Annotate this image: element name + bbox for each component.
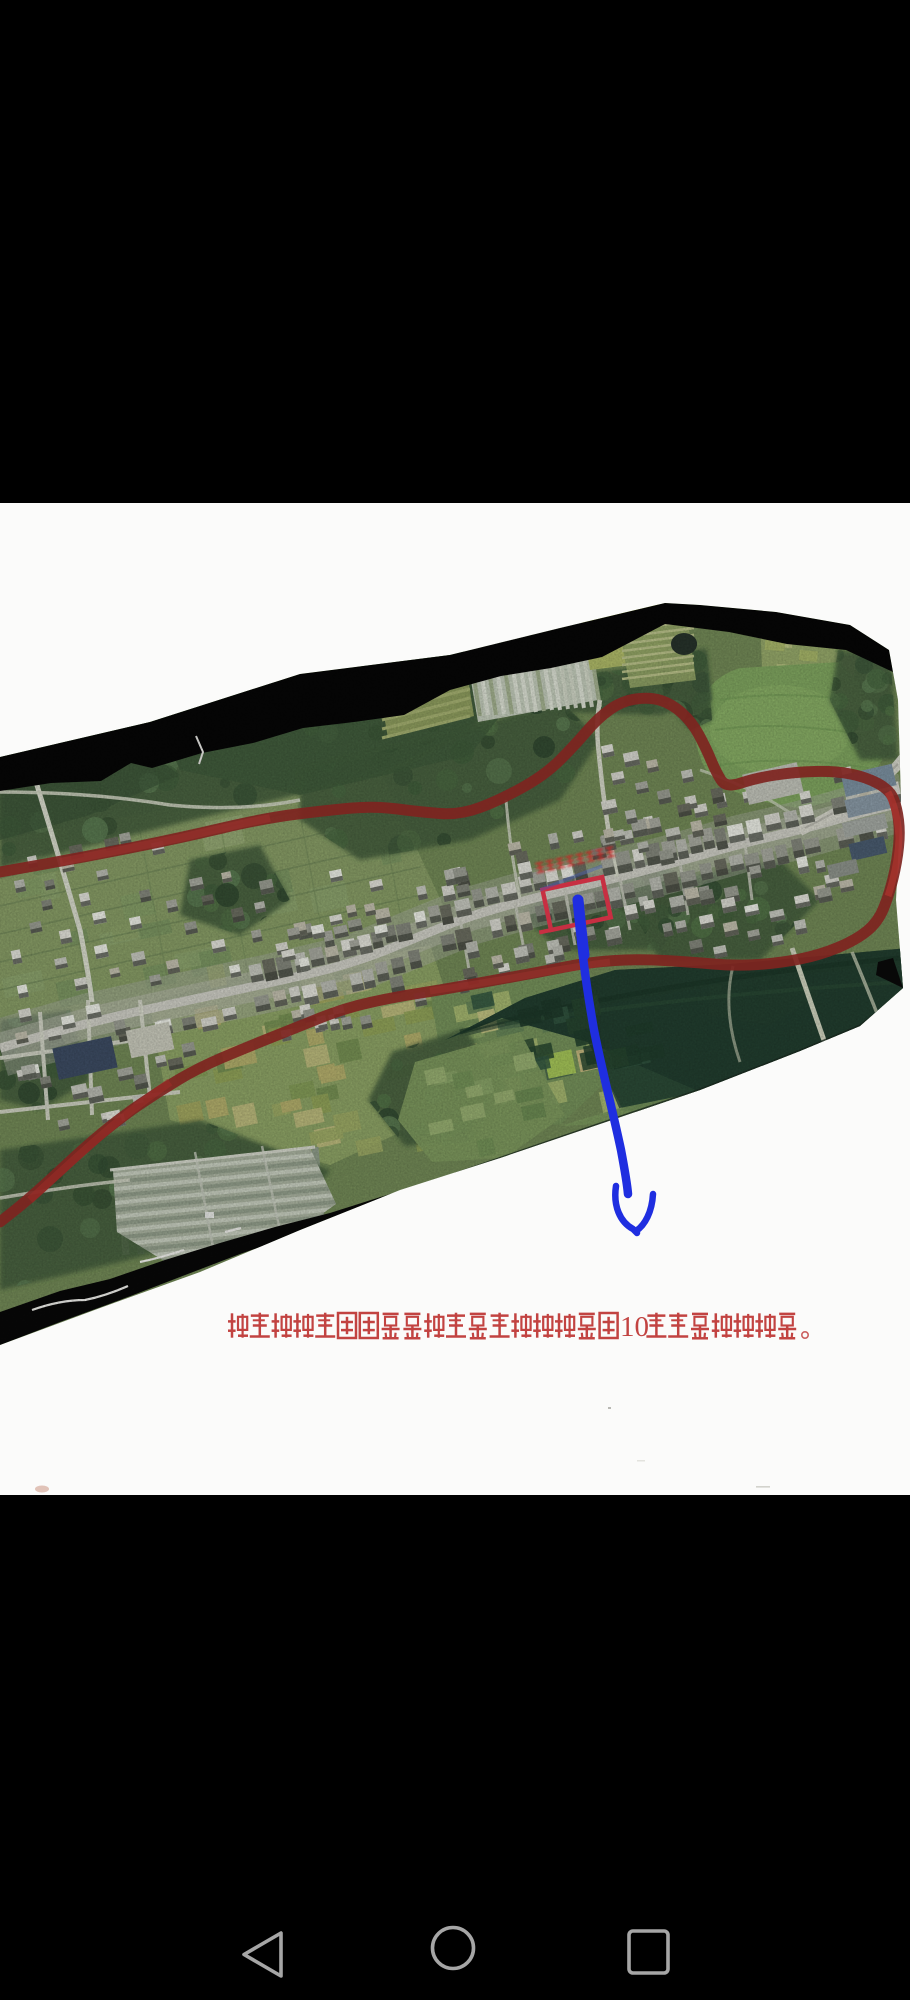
svg-text:10: 10 bbox=[620, 1311, 649, 1343]
